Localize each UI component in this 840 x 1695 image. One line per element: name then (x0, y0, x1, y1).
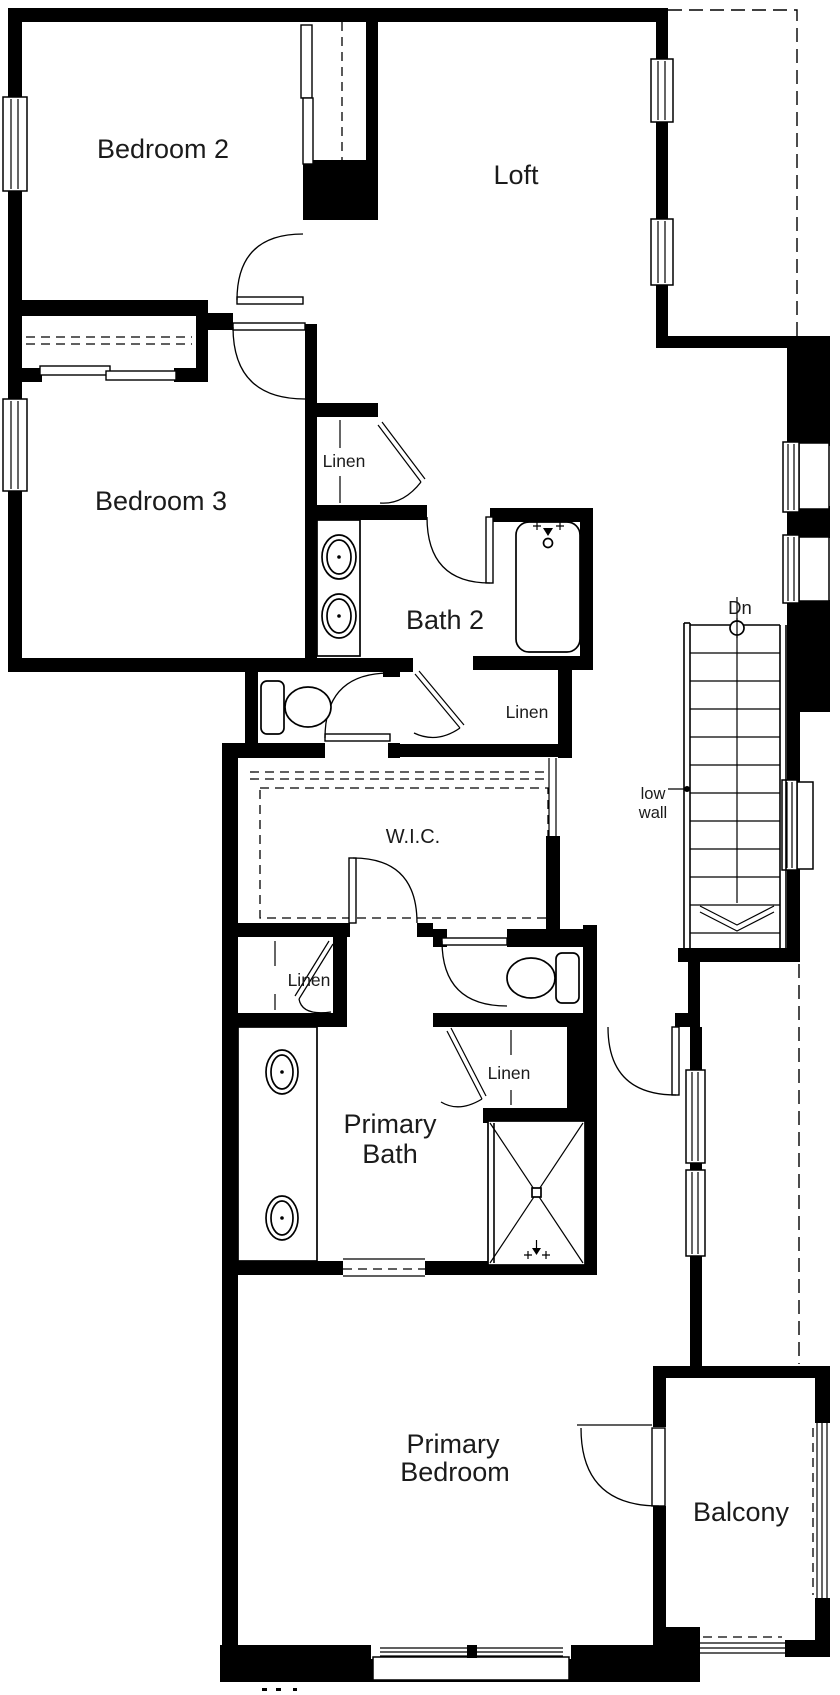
primary-bedroom-label-line1: Primary (407, 1429, 500, 1459)
window-primary-bedroom-bottom (371, 1645, 571, 1680)
linen-hall-lower-label: Linen (506, 702, 549, 722)
stairs-dn-label: Dn (728, 597, 752, 618)
window-bedroom2-left (3, 97, 27, 191)
door-bedroom3 (233, 323, 305, 399)
floor-plan-page: Bedroom 2 Loft Bedroom 3 Linen Bath 2 Li… (0, 0, 840, 1695)
linen-hall-upper-label: Linen (323, 451, 366, 471)
loft-label: Loft (493, 160, 539, 190)
shower (488, 1121, 585, 1265)
door-linen-primary-2 (441, 1028, 486, 1107)
cropped-text-fragment (262, 1688, 297, 1691)
primary-bath-label-line2: Bath (362, 1139, 418, 1169)
floor-plan-drawing: Bedroom 2 Loft Bedroom 3 Linen Bath 2 Li… (0, 0, 840, 1695)
stair-down-arrow (700, 906, 774, 931)
bath-cased-opening (343, 1257, 425, 1276)
low-wall-label-line1: low (641, 785, 666, 803)
bedroom2-label: Bedroom 2 (97, 134, 229, 164)
primary-vanity (238, 1027, 317, 1261)
door-bedroom2 (237, 234, 303, 304)
low-wall-label-line2: wall (638, 804, 667, 822)
balcony-railing (700, 1423, 827, 1653)
low-wall-leader (668, 786, 690, 792)
primary-bath-label-line1: Primary (344, 1109, 437, 1139)
balcony-label: Balcony (693, 1497, 790, 1527)
bathtub (516, 522, 580, 652)
door-linen-hall-upper (378, 422, 425, 503)
window-corridor-right-2 (686, 1170, 705, 1256)
door-primary-toilet (442, 938, 507, 1006)
hall-toilet (261, 681, 331, 734)
bath2-vanity (317, 520, 360, 656)
door-primary-suite-entry (608, 1027, 679, 1095)
door-bath2 (427, 517, 493, 583)
bedroom3-closet (26, 337, 192, 380)
bath2-label: Bath 2 (406, 605, 484, 635)
door-hall-toilet (325, 673, 390, 741)
primary-toilet (507, 953, 579, 1003)
window-bedroom3-left (3, 399, 27, 491)
window-right-wall-1 (783, 442, 829, 512)
bedroom2-closet (301, 22, 342, 164)
window-loft-right-1 (651, 59, 673, 122)
window-right-wall-2 (783, 535, 829, 603)
window-corridor-right-1 (686, 1070, 705, 1163)
staircase (684, 597, 786, 948)
wic-label: W.I.C. (386, 826, 440, 848)
stair-treads (690, 653, 780, 933)
door-linen-hall-lower (414, 671, 464, 737)
door-wic (349, 858, 417, 923)
door-balcony (577, 1425, 665, 1506)
linen-primary1-label: Linen (288, 970, 331, 990)
primary-bedroom-label-line2: Bedroom (400, 1457, 510, 1487)
window-loft-right-2 (651, 219, 673, 285)
bedroom3-label: Bedroom 3 (95, 486, 227, 516)
linen-primary2-label: Linen (488, 1063, 531, 1083)
